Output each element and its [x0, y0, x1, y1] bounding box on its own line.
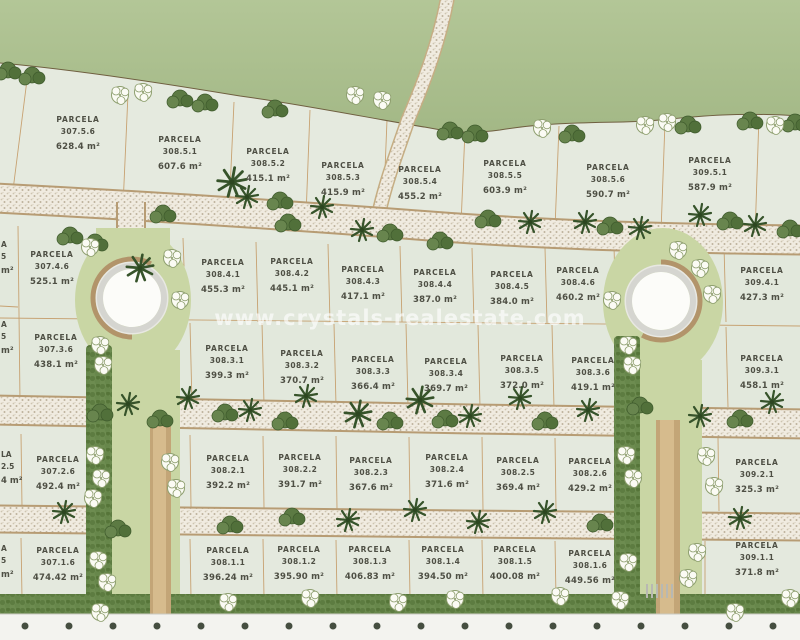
parcel-title: PARCELA: [396, 357, 496, 366]
parcel-308.2.4: PARCELA308.2.4371.6 m²: [397, 453, 497, 490]
parcel-309.1.1: PARCELA309.1.1371.8 m²: [707, 541, 800, 578]
edge-parcel-fragment: A5m²: [1, 320, 23, 356]
parcel-id: 308.5.5: [455, 171, 555, 180]
parcel-title: PARCELA: [707, 541, 800, 550]
fragment-line: 2.5: [1, 462, 23, 471]
parcel-title: PARCELA: [660, 156, 760, 165]
parcel-title: PARCELA: [321, 456, 421, 465]
parcel-area: 400.08 m²: [465, 572, 565, 582]
parcel-title: PARCELA: [472, 354, 572, 363]
parcel-area: 438.1 m²: [6, 360, 106, 370]
edge-parcel-fragment: A5m²: [1, 544, 23, 580]
parcel-id: 307.4.6: [2, 262, 102, 271]
parcel-308.5.3: PARCELA308.5.3415.9 m²: [293, 161, 393, 198]
parcel-308.3.6: PARCELA308.3.6419.1 m²: [543, 356, 643, 393]
parcel-id: 308.3.4: [396, 369, 496, 378]
parcel-title: PARCELA: [385, 268, 485, 277]
parcel-title: PARCELA: [462, 270, 562, 279]
parcel-308.3.3: PARCELA308.3.3366.4 m²: [323, 355, 423, 392]
fragment-line: A: [1, 320, 23, 329]
parcel-id: 308.3.3: [323, 367, 423, 376]
parcel-307.2.6: PARCELA307.2.6492.4 m²: [8, 455, 108, 492]
parcel-308.5.5: PARCELA308.5.5603.9 m²: [455, 159, 555, 196]
parcel-title: PARCELA: [177, 344, 277, 353]
parcel-id: 308.2.1: [178, 466, 278, 475]
parcel-title: PARCELA: [397, 453, 497, 462]
parcel-id: 308.1.4: [393, 557, 493, 566]
parcel-title: PARCELA: [465, 545, 565, 554]
parcel-307.1.6: PARCELA307.1.6474.42 m²: [8, 546, 108, 583]
edge-parcel-fragment: LA2.54 m²: [1, 450, 23, 486]
parcel-308.2.6: PARCELA308.2.6429.2 m²: [540, 457, 640, 494]
parcel-id: 308.2.3: [321, 468, 421, 477]
parcel-area: 396.24 m²: [178, 573, 278, 583]
parcel-title: PARCELA: [8, 455, 108, 464]
fragment-line: 5: [1, 332, 23, 341]
parcel-area: 415.9 m²: [293, 188, 393, 198]
parcel-id: 308.4.2: [242, 269, 342, 278]
parcel-area: 399.3 m²: [177, 371, 277, 381]
parcel-id: 309.1.1: [707, 553, 800, 562]
parcel-title: PARCELA: [28, 115, 128, 124]
parcel-title: PARCELA: [370, 165, 470, 174]
parcel-area: 392.2 m²: [178, 481, 278, 491]
fragment-line: m²: [1, 266, 23, 276]
parcel-area: 371.6 m²: [397, 480, 497, 490]
fragment-line: 4 m²: [1, 476, 23, 486]
parcel-id: 308.1.1: [178, 558, 278, 567]
parcel-id: 309.2.1: [707, 470, 800, 479]
parcel-308.3.4: PARCELA308.3.4369.7 m²: [396, 357, 496, 394]
parcel-area: 419.1 m²: [543, 383, 643, 393]
parcel-title: PARCELA: [712, 266, 800, 275]
parcel-id: 308.5.1: [130, 147, 230, 156]
parcel-site-plan: PARCELA307.5.6628.4 m²PARCELA308.5.1607.…: [0, 0, 800, 640]
parcel-id: 308.2.6: [540, 469, 640, 478]
parcel-title: PARCELA: [528, 266, 628, 275]
parcel-308.3.5: PARCELA308.3.5372.0 m²: [472, 354, 572, 391]
parcel-id: 308.5.3: [293, 173, 393, 182]
parcel-title: PARCELA: [712, 354, 800, 363]
parcel-area: 449.56 m²: [540, 576, 640, 586]
fragment-line: m²: [1, 570, 23, 580]
parcel-id: 308.1.5: [465, 557, 565, 566]
parcel-id: 308.1.6: [540, 561, 640, 570]
parcel-title: PARCELA: [249, 545, 349, 554]
parcel-area: 455.3 m²: [173, 285, 273, 295]
parcel-id: 307.1.6: [8, 558, 108, 567]
parcel-title: PARCELA: [393, 545, 493, 554]
fragment-line: A: [1, 544, 23, 553]
parcel-title: PARCELA: [293, 161, 393, 170]
parcel-308.4.5: PARCELA308.4.5384.0 m²: [462, 270, 562, 307]
fragment-line: A: [1, 240, 23, 249]
parcel-309.4.1: PARCELA309.4.1427.3 m²: [712, 266, 800, 303]
parcel-308.1.4: PARCELA308.1.4394.50 m²: [393, 545, 493, 582]
parcel-area: 415.1 m²: [218, 174, 318, 184]
parcel-id: 308.3.2: [252, 361, 352, 370]
parcel-title: PARCELA: [468, 456, 568, 465]
parcel-id: 308.3.6: [543, 368, 643, 377]
parcel-309.5.1: PARCELA309.5.1587.9 m²: [660, 156, 760, 193]
parcel-area: 406.83 m²: [320, 572, 420, 582]
parcel-308.4.6: PARCELA308.4.6460.2 m²: [528, 266, 628, 303]
parcel-308.4.2: PARCELA308.4.2445.1 m²: [242, 257, 342, 294]
parcel-309.2.1: PARCELA309.2.1325.3 m²: [707, 458, 800, 495]
parcel-area: 607.6 m²: [130, 162, 230, 172]
parcel-title: PARCELA: [320, 545, 420, 554]
parcel-area: 369.4 m²: [468, 483, 568, 493]
parcel-area: 587.9 m²: [660, 183, 760, 193]
parcel-id: 308.3.5: [472, 366, 572, 375]
parcel-id: 308.4.3: [313, 277, 413, 286]
parcel-308.4.1: PARCELA308.4.1455.3 m²: [173, 258, 273, 295]
parcel-title: PARCELA: [558, 163, 658, 172]
parcel-id: 308.4.1: [173, 270, 273, 279]
parcel-309.3.1: PARCELA309.3.1458.1 m²: [712, 354, 800, 391]
parcel-area: 429.2 m²: [540, 484, 640, 494]
parcel-title: PARCELA: [8, 546, 108, 555]
parcel-title: PARCELA: [543, 356, 643, 365]
parcel-id: 307.3.6: [6, 345, 106, 354]
parcel-308.4.4: PARCELA308.4.4387.0 m²: [385, 268, 485, 305]
parcel-308.3.1: PARCELA308.3.1399.3 m²: [177, 344, 277, 381]
parcel-id: 308.3.1: [177, 356, 277, 365]
parcel-area: 391.7 m²: [250, 480, 350, 490]
parcel-308.5.2: PARCELA308.5.2415.1 m²: [218, 147, 318, 184]
parcel-id: 308.4.4: [385, 280, 485, 289]
parcel-title: PARCELA: [707, 458, 800, 467]
parcel-id: 308.1.2: [249, 557, 349, 566]
parcel-id: 307.5.6: [28, 127, 128, 136]
parcel-308.5.6: PARCELA308.5.6590.7 m²: [558, 163, 658, 200]
parcel-id: 308.2.2: [250, 465, 350, 474]
parcel-308.2.5: PARCELA308.2.5369.4 m²: [468, 456, 568, 493]
parcel-308.1.1: PARCELA308.1.1396.24 m²: [178, 546, 278, 583]
parcel-title: PARCELA: [540, 549, 640, 558]
parcel-title: PARCELA: [218, 147, 318, 156]
parcel-308.5.4: PARCELA308.5.4455.2 m²: [370, 165, 470, 202]
parcel-308.1.2: PARCELA308.1.2395.90 m²: [249, 545, 349, 582]
parcel-id: 308.4.5: [462, 282, 562, 291]
parcel-id: 308.2.5: [468, 468, 568, 477]
parcel-area: 445.1 m²: [242, 284, 342, 294]
parcel-id: 307.2.6: [8, 467, 108, 476]
parcel-area: 460.2 m²: [528, 293, 628, 303]
parcel-title: PARCELA: [178, 546, 278, 555]
parcel-area: 417.1 m²: [313, 292, 413, 302]
parcel-area: 366.4 m²: [323, 382, 423, 392]
parcel-area: 395.90 m²: [249, 572, 349, 582]
parcel-id: 308.5.4: [370, 177, 470, 186]
parcel-area: 372.0 m²: [472, 381, 572, 391]
parcel-title: PARCELA: [130, 135, 230, 144]
parcel-area: 427.3 m²: [712, 293, 800, 303]
parcel-title: PARCELA: [252, 349, 352, 358]
fragment-line: 5: [1, 556, 23, 565]
parcel-title: PARCELA: [173, 258, 273, 267]
parcel-307.3.6: PARCELA307.3.6438.1 m²: [6, 333, 106, 370]
parcel-id: 308.2.4: [397, 465, 497, 474]
parcel-308.2.3: PARCELA308.2.3367.6 m²: [321, 456, 421, 493]
parcel-title: PARCELA: [323, 355, 423, 364]
parcel-308.1.6: PARCELA308.1.6449.56 m²: [540, 549, 640, 586]
parcel-area: 367.6 m²: [321, 483, 421, 493]
parcel-area: 492.4 m²: [8, 482, 108, 492]
parcel-title: PARCELA: [250, 453, 350, 462]
fragment-line: LA: [1, 450, 23, 459]
parcel-id: 308.4.6: [528, 278, 628, 287]
parcel-title: PARCELA: [313, 265, 413, 274]
parcel-title: PARCELA: [2, 250, 102, 259]
parcel-area: 371.8 m²: [707, 568, 800, 578]
parcel-area: 525.1 m²: [2, 277, 102, 287]
parcel-area: 590.7 m²: [558, 190, 658, 200]
parcel-id: 309.5.1: [660, 168, 760, 177]
parcel-area: 394.50 m²: [393, 572, 493, 582]
parcel-id: 308.5.6: [558, 175, 658, 184]
parcel-307.4.6: PARCELA307.4.6525.1 m²: [2, 250, 102, 287]
parcel-title: PARCELA: [178, 454, 278, 463]
parcel-title: PARCELA: [455, 159, 555, 168]
parcel-title: PARCELA: [242, 257, 342, 266]
parcel-area: 369.7 m²: [396, 384, 496, 394]
parcel-id: 309.3.1: [712, 366, 800, 375]
parcel-area: 458.1 m²: [712, 381, 800, 391]
parcel-area: 603.9 m²: [455, 186, 555, 196]
parcel-area: 455.2 m²: [370, 192, 470, 202]
parcel-id: 308.5.2: [218, 159, 318, 168]
parcel-308.5.1: PARCELA308.5.1607.6 m²: [130, 135, 230, 172]
edge-parcel-fragment: A5m²: [1, 240, 23, 276]
parcel-title: PARCELA: [6, 333, 106, 342]
parcel-area: 384.0 m²: [462, 297, 562, 307]
parcel-id: 309.4.1: [712, 278, 800, 287]
parcel-308.2.1: PARCELA308.2.1392.2 m²: [178, 454, 278, 491]
parcel-area: 370.7 m²: [252, 376, 352, 386]
parcel-308.1.3: PARCELA308.1.3406.83 m²: [320, 545, 420, 582]
parcel-labels-layer: PARCELA307.5.6628.4 m²PARCELA308.5.1607.…: [0, 0, 800, 640]
fragment-line: m²: [1, 346, 23, 356]
parcel-308.4.3: PARCELA308.4.3417.1 m²: [313, 265, 413, 302]
parcel-area: 387.0 m²: [385, 295, 485, 305]
fragment-line: 5: [1, 252, 23, 261]
parcel-id: 308.1.3: [320, 557, 420, 566]
parcel-title: PARCELA: [540, 457, 640, 466]
parcel-308.2.2: PARCELA308.2.2391.7 m²: [250, 453, 350, 490]
parcel-307.5.6: PARCELA307.5.6628.4 m²: [28, 115, 128, 152]
parcel-area: 628.4 m²: [28, 142, 128, 152]
parcel-308.3.2: PARCELA308.3.2370.7 m²: [252, 349, 352, 386]
parcel-area: 474.42 m²: [8, 573, 108, 583]
parcel-area: 325.3 m²: [707, 485, 800, 495]
parcel-308.1.5: PARCELA308.1.5400.08 m²: [465, 545, 565, 582]
